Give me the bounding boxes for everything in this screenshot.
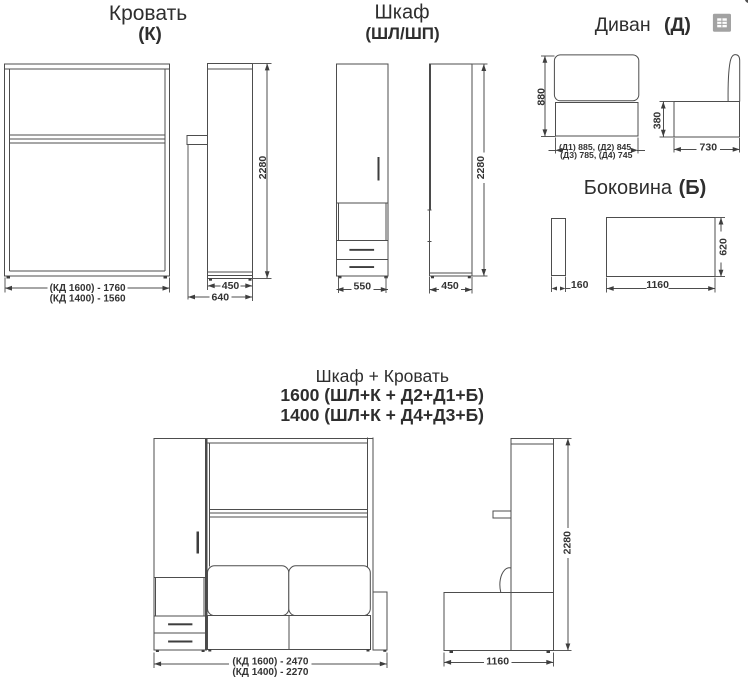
svg-text:Боковина: Боковина xyxy=(584,177,673,199)
svg-text:1400 (ШЛ+К + Д4+Д3+Б): 1400 (ШЛ+К + Д4+Д3+Б) xyxy=(280,405,484,425)
svg-text:880: 880 xyxy=(535,88,547,106)
svg-text:1160: 1160 xyxy=(486,656,509,668)
svg-text:450: 450 xyxy=(222,280,240,292)
svg-text:(Д3) 785, (Д4) 745: (Д3) 785, (Д4) 745 xyxy=(560,150,632,160)
svg-text:160: 160 xyxy=(571,279,589,291)
svg-text:(К): (К) xyxy=(138,23,162,44)
svg-text:(Б): (Б) xyxy=(679,177,707,199)
svg-text:Диван: Диван xyxy=(595,14,651,36)
svg-text:(КД 1600) - 2470: (КД 1600) - 2470 xyxy=(232,656,308,667)
svg-text:2280: 2280 xyxy=(475,156,487,180)
svg-text:2280: 2280 xyxy=(562,531,574,555)
svg-text:1600 (ШЛ+К + Д2+Д1+Б): 1600 (ШЛ+К + Д2+Д1+Б) xyxy=(280,385,484,405)
svg-text:380: 380 xyxy=(651,112,663,130)
svg-text:550: 550 xyxy=(354,280,372,292)
svg-text:620: 620 xyxy=(717,238,729,256)
svg-text:Шкаф + Кровать: Шкаф + Кровать xyxy=(316,366,449,386)
svg-text:(ШЛ/ШП): (ШЛ/ШП) xyxy=(365,24,439,43)
svg-text:Шкаф: Шкаф xyxy=(374,2,429,24)
svg-text:730: 730 xyxy=(700,141,718,153)
svg-text:450: 450 xyxy=(441,280,459,292)
svg-text:(КД 1400) - 2270: (КД 1400) - 2270 xyxy=(232,667,308,678)
svg-text:(КД 1400) - 1560: (КД 1400) - 1560 xyxy=(50,294,126,305)
svg-text:Кровать: Кровать xyxy=(109,2,187,25)
svg-text:640: 640 xyxy=(212,291,230,303)
svg-text:2280: 2280 xyxy=(257,156,269,180)
svg-text:(Д): (Д) xyxy=(664,14,691,36)
svg-text:1160: 1160 xyxy=(646,279,669,291)
